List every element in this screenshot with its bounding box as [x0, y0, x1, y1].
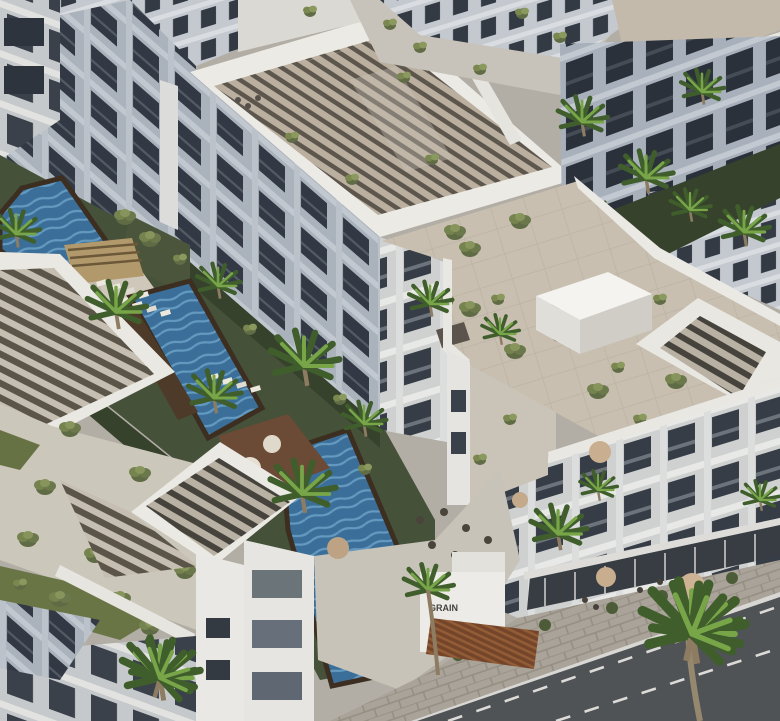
- svg-text:GRAIN: GRAIN: [429, 603, 458, 613]
